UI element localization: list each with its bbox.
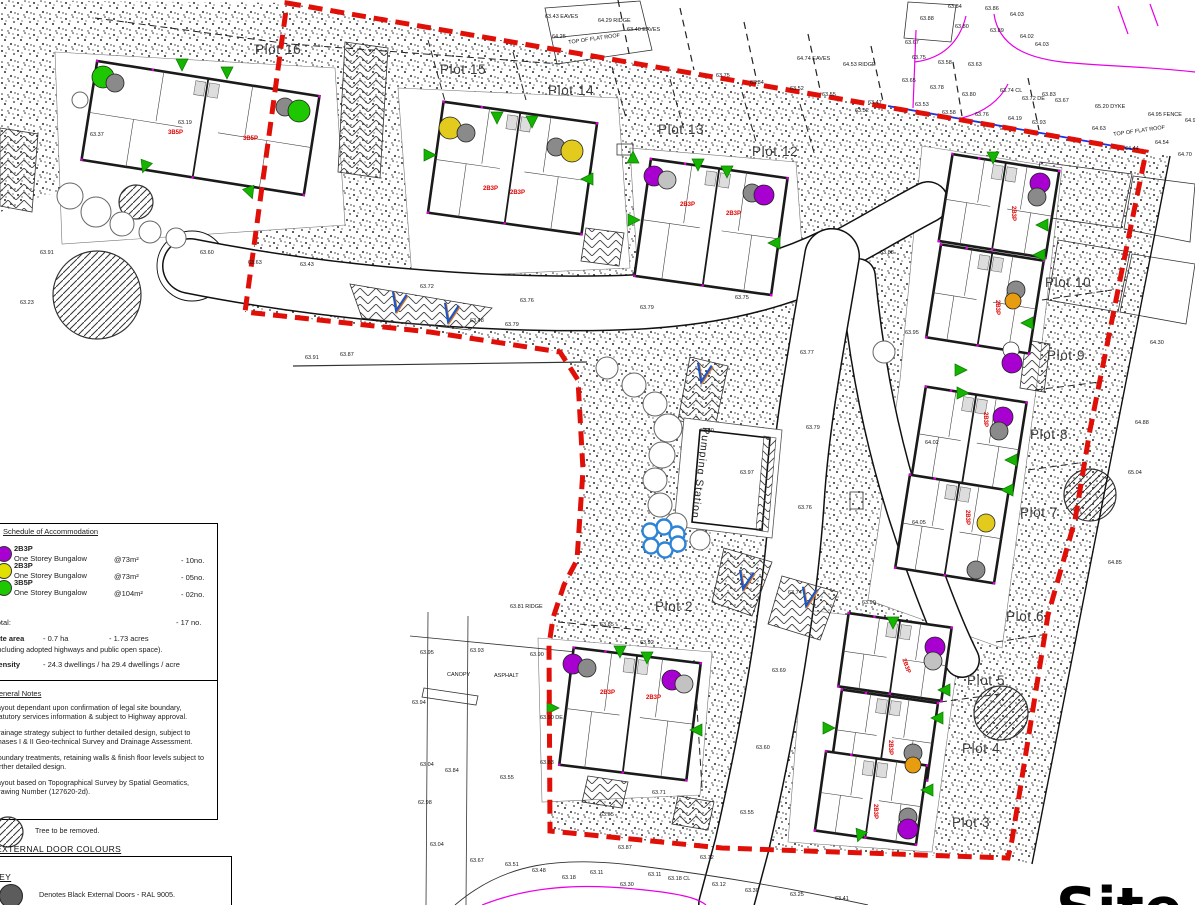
tree-to-remove-icon xyxy=(1064,469,1116,521)
survey-dot xyxy=(937,240,940,243)
fitting xyxy=(945,485,957,500)
fitting xyxy=(623,658,635,673)
key-item-label: Denotes Black External Doors - RAL 9005. xyxy=(39,890,175,899)
general-notes-panel: General Notes Layout dependant upon conf… xyxy=(0,680,218,820)
gray-marker-icon xyxy=(967,561,985,579)
survey-dot xyxy=(950,626,953,629)
note-item: Drainage strategy subject to further det… xyxy=(0,728,211,747)
fitting xyxy=(962,397,974,412)
fitting xyxy=(978,255,990,270)
site-area-label: Site area xyxy=(0,634,24,643)
purple-marker-icon xyxy=(898,819,918,839)
tree-icon xyxy=(72,92,88,108)
unit-area: @104m² xyxy=(114,589,143,598)
survey-dot xyxy=(442,100,445,103)
tree-icon xyxy=(649,442,675,468)
survey-dot xyxy=(926,764,929,767)
site-area-ha: - 0.7 ha xyxy=(43,634,68,643)
fitting xyxy=(862,761,874,776)
unit-count: - 05no. xyxy=(181,573,204,582)
pumping-station-compound xyxy=(674,418,782,538)
unit-area: @73m² xyxy=(114,572,139,581)
survey-dot xyxy=(915,843,918,846)
gray-marker-icon xyxy=(457,124,475,142)
fitting xyxy=(991,165,1003,180)
gray-marker-icon xyxy=(578,659,596,677)
tree-icon xyxy=(690,530,710,550)
orange-marker-icon xyxy=(1005,293,1021,309)
note-item: Layout based on Topographical Survey by … xyxy=(0,778,211,797)
gray-marker-icon xyxy=(1028,188,1046,206)
survey-dot xyxy=(770,294,773,297)
tree-icon xyxy=(81,197,111,227)
survey-dot xyxy=(318,95,321,98)
unit-code: 2B3P xyxy=(14,544,33,553)
note-item: Boundary treatments, retaining walls & f… xyxy=(0,753,211,772)
building xyxy=(925,243,1045,355)
density-acre: - 29.4 dwellings / acre xyxy=(107,660,180,669)
survey-dot xyxy=(950,389,953,392)
tree-icon xyxy=(648,493,672,517)
survey-dot xyxy=(151,68,154,71)
tree-icon xyxy=(654,414,682,442)
survey-dot xyxy=(965,247,968,250)
yellow-unit-dot-icon xyxy=(0,563,12,579)
density-ha: - 24.3 dwellings / ha xyxy=(43,660,110,669)
orange-marker-icon xyxy=(905,757,921,773)
fitting xyxy=(975,399,987,414)
survey-dot xyxy=(786,177,789,180)
tree-icon xyxy=(643,392,667,416)
note-item: Layout dependant upon confirmation of le… xyxy=(0,703,211,722)
survey-dot xyxy=(864,836,867,839)
fitting xyxy=(876,763,888,778)
survey-dot xyxy=(699,662,702,665)
survey-dot xyxy=(814,829,817,832)
tree-icon xyxy=(622,373,646,397)
tree-icon xyxy=(110,212,134,236)
site-area-acres: - 1.73 acres xyxy=(109,634,149,643)
tree-icon xyxy=(139,221,161,243)
site-area-note: (Including adopted highways and public o… xyxy=(0,645,162,654)
survey-dot xyxy=(937,702,940,705)
unit-code: 2B3P xyxy=(14,561,33,570)
tree-icon xyxy=(57,183,83,209)
survey-dot xyxy=(621,771,624,774)
survey-dot xyxy=(580,233,583,236)
gray-marker-icon xyxy=(990,422,1008,440)
survey-dot xyxy=(96,60,99,63)
attenuation-crate-icon xyxy=(644,539,659,554)
yellow-marker-icon xyxy=(561,140,583,162)
purple-unit-dot-icon xyxy=(0,546,12,562)
survey-dot xyxy=(503,222,506,225)
unit-count: - 10no. xyxy=(181,556,204,565)
survey-dot xyxy=(572,646,575,649)
survey-dot xyxy=(684,162,687,165)
drawing-title: Site plan xyxy=(1056,876,1195,905)
schedule-heading: Schedule of Accommodation xyxy=(3,527,98,536)
survey-dot xyxy=(978,157,981,160)
survey-dot xyxy=(604,650,607,653)
survey-dot xyxy=(873,615,876,618)
tree-key-label: Tree to be removed. xyxy=(35,826,99,835)
gray-marker-icon xyxy=(106,74,124,92)
unit-area: @73m² xyxy=(114,555,139,564)
general-notes-heading: General Notes xyxy=(0,689,41,698)
survey-dot xyxy=(847,612,850,615)
survey-dot xyxy=(427,211,430,214)
attenuation-crate-icon xyxy=(671,537,686,552)
survey-dot xyxy=(933,477,936,480)
survey-dot xyxy=(481,106,484,109)
density-label: Density xyxy=(0,660,20,669)
purple-marker-icon xyxy=(1002,353,1022,373)
unit-count: - 02no. xyxy=(181,590,204,599)
yellow-marker-icon xyxy=(977,514,995,532)
schedule-panel: Schedule of Accommodation 2B3P One Store… xyxy=(0,523,218,682)
survey-dot xyxy=(302,194,305,197)
survey-dot xyxy=(925,336,928,339)
fitting xyxy=(876,699,888,714)
survey-dot xyxy=(1058,170,1061,173)
key-heading: KEY xyxy=(0,872,11,882)
survey-dot xyxy=(940,243,943,246)
unit-code: 3B5P xyxy=(14,578,33,587)
lgray-marker-icon xyxy=(658,171,676,189)
survey-dot xyxy=(850,753,853,756)
fitting xyxy=(900,625,912,640)
survey-dot xyxy=(191,176,194,179)
green-unit-dot-icon xyxy=(0,580,12,596)
survey-dot xyxy=(888,692,891,695)
survey-dot xyxy=(894,566,897,569)
tree-icon xyxy=(596,357,618,379)
site-plan-drawing: Plot 16Plot 15Plot 14Plot 13Plot 12Plot … xyxy=(0,0,1195,905)
survey-dot xyxy=(825,750,828,753)
tree-to-remove-icon xyxy=(974,686,1028,740)
lgray-marker-icon xyxy=(924,652,942,670)
survey-dot xyxy=(943,574,946,577)
total-label: Total: xyxy=(0,618,11,627)
door-colours-heading: EXTERNAL DOOR COLOURS xyxy=(0,844,121,854)
survey-dot xyxy=(841,688,844,691)
survey-dot xyxy=(558,763,561,766)
tree-to-remove-icon xyxy=(53,251,141,339)
survey-dot xyxy=(837,685,840,688)
fitting xyxy=(207,83,219,98)
unit-desc: One Storey Bungalow xyxy=(14,588,87,597)
survey-dot xyxy=(685,779,688,782)
survey-dot xyxy=(1028,352,1031,355)
survey-dot xyxy=(951,153,954,156)
survey-dot xyxy=(596,122,599,125)
survey-dot xyxy=(650,158,653,161)
fitting xyxy=(959,487,971,502)
survey-dot xyxy=(976,344,979,347)
survey-dot xyxy=(991,248,994,251)
survey-dot xyxy=(924,385,927,388)
survey-dot xyxy=(909,473,912,476)
total-value: - 17 no. xyxy=(176,618,201,627)
tree-icon xyxy=(873,341,895,363)
key-panel: KEY Denotes Black External Doors - RAL 9… xyxy=(0,856,232,905)
survey-dot xyxy=(1025,401,1028,404)
survey-dot xyxy=(701,284,704,287)
lgray-marker-icon xyxy=(675,675,693,693)
survey-dot xyxy=(993,582,996,585)
black-door-dot-icon xyxy=(0,884,23,905)
tree-icon xyxy=(643,468,667,492)
fitting xyxy=(1005,167,1017,182)
fitting xyxy=(705,171,717,186)
survey-dot xyxy=(633,274,636,277)
building xyxy=(937,153,1060,260)
fitting xyxy=(992,257,1004,272)
fitting xyxy=(506,115,518,130)
tree-icon xyxy=(166,228,186,248)
fitting xyxy=(194,81,206,96)
fitting xyxy=(889,701,901,716)
survey-dot xyxy=(80,158,83,161)
survey-dot xyxy=(865,692,868,695)
purple-marker-icon xyxy=(754,185,774,205)
green-marker-icon xyxy=(288,100,310,122)
attenuation-crate-icon xyxy=(643,524,658,539)
survey-dot xyxy=(940,700,943,703)
